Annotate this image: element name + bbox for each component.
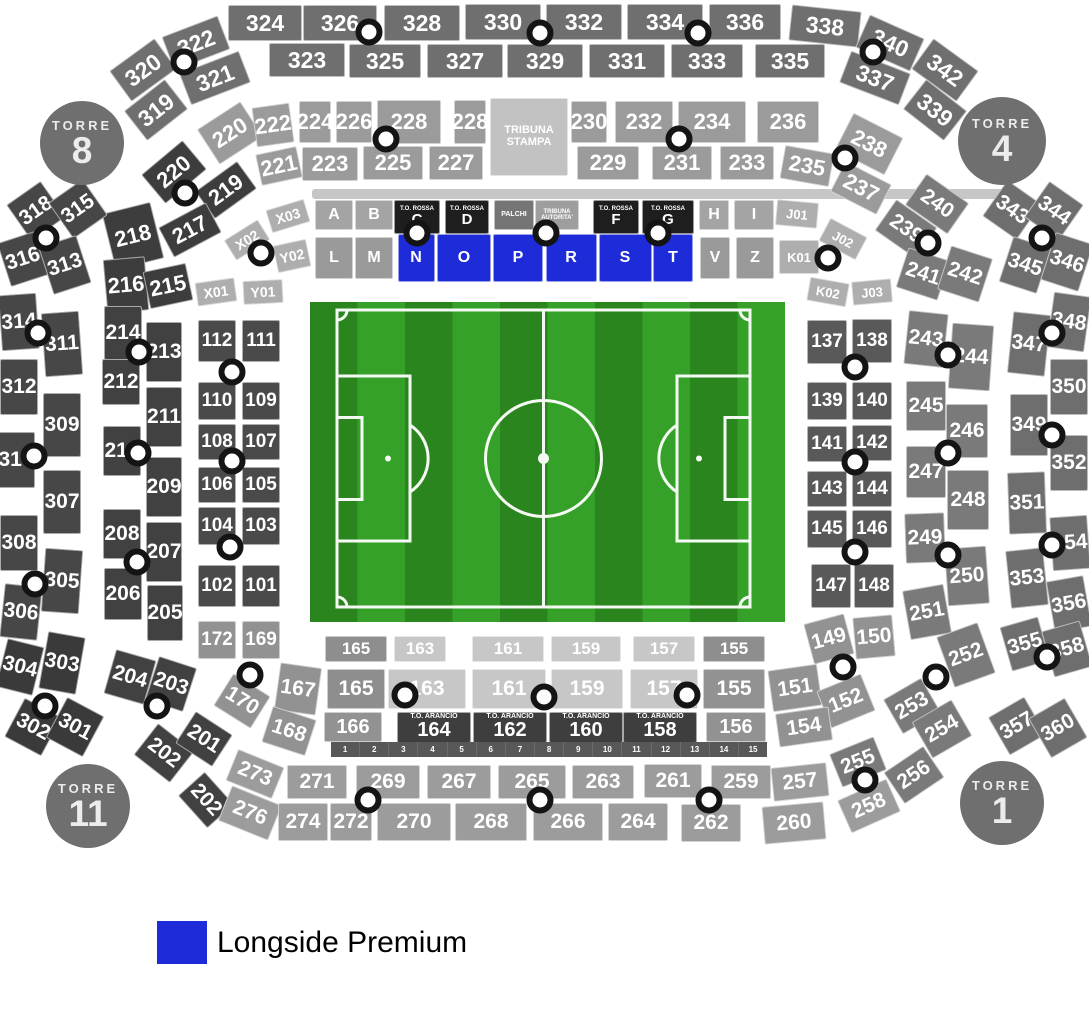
section-h[interactable]: H — [699, 200, 729, 230]
gate-marker-icon — [832, 145, 859, 172]
section-226[interactable]: 226 — [336, 101, 372, 143]
section-324[interactable]: 324 — [228, 5, 302, 41]
gate-cell-1: 1 — [331, 742, 359, 757]
section-label: D — [462, 212, 473, 228]
tower-number: 1 — [992, 793, 1013, 828]
section-155[interactable]: 155 — [703, 636, 765, 662]
section-332[interactable]: 332 — [546, 4, 622, 40]
gate-cell-11: 11 — [622, 742, 650, 757]
tower-number: 4 — [992, 131, 1013, 166]
section-205[interactable]: 205 — [147, 585, 183, 641]
gate-cell-7: 7 — [506, 742, 534, 757]
gate-marker-icon — [356, 19, 383, 46]
section-k01[interactable]: K01 — [779, 240, 819, 274]
section-159[interactable]: 159 — [551, 636, 621, 662]
gate-marker-icon — [674, 682, 701, 709]
section-223[interactable]: 223 — [302, 147, 358, 181]
gate-marker-icon — [33, 225, 60, 252]
gate-marker-icon — [126, 339, 153, 366]
gate-marker-icon — [1039, 422, 1066, 449]
section-103[interactable]: 103 — [242, 507, 280, 545]
section-147[interactable]: 147 — [811, 564, 851, 608]
section-label: 158 — [643, 720, 676, 741]
section-163[interactable]: 163 — [394, 636, 446, 662]
gate-marker-icon — [666, 126, 693, 153]
section-stampa[interactable]: TRIBUNASTAMPA — [490, 98, 568, 176]
section-156[interactable]: 156 — [706, 712, 766, 742]
gate-marker-icon — [842, 449, 869, 476]
section-331[interactable]: 331 — [589, 44, 665, 78]
section-155[interactable]: 155 — [703, 669, 765, 709]
gate-marker-icon — [219, 448, 246, 475]
section-228[interactable]: 228 — [454, 100, 486, 144]
section-158[interactable]: T.O. ARANCIO158 — [623, 712, 697, 743]
gate-cell-8: 8 — [535, 742, 563, 757]
section-165[interactable]: 165 — [327, 669, 385, 709]
section-215[interactable]: 215 — [143, 263, 194, 309]
section-l[interactable]: L — [315, 237, 353, 279]
tower-number: 11 — [68, 796, 107, 831]
gate-marker-icon — [25, 320, 52, 347]
gate-marker-icon — [830, 654, 857, 681]
gate-marker-icon — [144, 693, 171, 720]
gate-marker-icon — [685, 20, 712, 47]
gate-marker-icon — [852, 767, 879, 794]
section-333[interactable]: 333 — [671, 44, 743, 78]
section-109[interactable]: 109 — [242, 382, 280, 420]
football-pitch — [310, 302, 785, 622]
section-207[interactable]: 207 — [146, 522, 182, 582]
section-248[interactable]: 248 — [947, 470, 989, 530]
section-label: F — [611, 212, 620, 228]
gate-marker-icon — [915, 230, 942, 257]
section-260[interactable]: 260 — [761, 801, 826, 844]
gate-marker-icon — [32, 693, 59, 720]
section-233[interactable]: 233 — [720, 146, 774, 180]
section-323[interactable]: 323 — [269, 43, 345, 77]
section-107[interactable]: 107 — [242, 424, 280, 460]
section-338[interactable]: 338 — [788, 4, 861, 47]
section-137[interactable]: 137 — [807, 320, 847, 364]
section-154[interactable]: 154 — [775, 706, 833, 747]
gate-marker-icon — [935, 542, 962, 569]
section-312[interactable]: 312 — [0, 359, 38, 415]
section-101[interactable]: 101 — [242, 565, 280, 607]
section-144[interactable]: 144 — [852, 471, 892, 507]
gate-marker-icon — [404, 220, 431, 247]
gate-marker-icon — [355, 787, 382, 814]
section-325[interactable]: 325 — [349, 44, 421, 78]
section-274[interactable]: 274 — [278, 803, 328, 841]
section-label: 160 — [569, 720, 602, 741]
gate-marker-icon — [21, 443, 48, 470]
section-label: 162 — [493, 720, 526, 741]
section-261[interactable]: 261 — [644, 764, 702, 798]
section-y01[interactable]: Y01 — [242, 279, 283, 305]
section-267[interactable]: 267 — [427, 765, 491, 799]
gate-marker-icon — [172, 180, 199, 207]
section-209[interactable]: 209 — [146, 457, 182, 517]
gate-marker-icon — [842, 354, 869, 381]
section-164[interactable]: T.O. ARANCIO164 — [397, 712, 471, 743]
gate-marker-icon — [1039, 320, 1066, 347]
section-159[interactable]: 159 — [551, 669, 623, 709]
section-235[interactable]: 235 — [779, 145, 834, 187]
section-263[interactable]: 263 — [572, 765, 634, 799]
gate-marker-icon — [1039, 532, 1066, 559]
section-211[interactable]: 211 — [146, 387, 182, 447]
legend: Longside Premium — [157, 921, 467, 964]
section-j03[interactable]: J03 — [851, 278, 893, 305]
gate-marker-icon — [527, 20, 554, 47]
section-212[interactable]: 212 — [102, 359, 140, 405]
section-palchi[interactable]: PALCHI — [494, 200, 534, 230]
section-172[interactable]: 172 — [198, 621, 236, 659]
section-251[interactable]: 251 — [902, 584, 952, 641]
section-206[interactable]: 206 — [104, 568, 142, 620]
section-f[interactable]: T.O. ROSSAF — [593, 200, 639, 234]
tower-number: 8 — [72, 133, 93, 168]
gate-marker-icon — [815, 245, 842, 272]
section-x01[interactable]: X01 — [195, 277, 238, 306]
section-112[interactable]: 112 — [198, 320, 236, 362]
gate-cell-10: 10 — [593, 742, 621, 757]
section-k02[interactable]: K02 — [806, 277, 850, 308]
concourse-strip — [312, 189, 1012, 199]
gate-marker-icon — [935, 440, 962, 467]
section-311[interactable]: 311 — [41, 311, 83, 377]
section-227[interactable]: 227 — [429, 146, 483, 180]
section-102[interactable]: 102 — [198, 565, 236, 607]
section-165[interactable]: 165 — [325, 636, 387, 662]
section-336[interactable]: 336 — [709, 4, 781, 40]
section-166[interactable]: 166 — [324, 712, 382, 742]
section-141[interactable]: 141 — [807, 426, 847, 462]
gate-cell-9: 9 — [564, 742, 592, 757]
gate-cell-5: 5 — [448, 742, 476, 757]
gate-marker-icon — [237, 662, 264, 689]
section-sublabel: PALCHI — [501, 211, 527, 218]
legend-color-swatch — [157, 921, 207, 964]
gate-cell-15: 15 — [739, 742, 767, 757]
section-148[interactable]: 148 — [854, 564, 894, 608]
section-140[interactable]: 140 — [852, 382, 892, 420]
section-v[interactable]: V — [700, 237, 730, 279]
section-157[interactable]: 157 — [633, 636, 695, 662]
section-221[interactable]: 221 — [255, 146, 303, 186]
gate-marker-icon — [217, 534, 244, 561]
section-245[interactable]: 245 — [906, 381, 946, 431]
gate-marker-icon — [22, 571, 49, 598]
section-label: STAMPA — [507, 137, 552, 149]
section-335[interactable]: 335 — [755, 44, 825, 78]
section-350[interactable]: 350 — [1050, 359, 1088, 415]
section-225[interactable]: 225 — [363, 146, 423, 180]
section-268[interactable]: 268 — [455, 803, 527, 841]
section-307[interactable]: 307 — [43, 470, 81, 534]
section-161[interactable]: 161 — [472, 636, 544, 662]
gate-cell-4: 4 — [418, 742, 446, 757]
section-353[interactable]: 353 — [1005, 547, 1049, 609]
section-242[interactable]: 242 — [937, 245, 993, 302]
section-271[interactable]: 271 — [287, 765, 347, 799]
gate-marker-icon — [935, 342, 962, 369]
section-150[interactable]: 150 — [852, 614, 896, 659]
section-151[interactable]: 151 — [767, 664, 822, 713]
gate-marker-icon — [860, 39, 887, 66]
gate-marker-icon — [645, 220, 672, 247]
legend-label: Longside Premium — [217, 926, 467, 960]
section-160[interactable]: T.O. ARANCIO160 — [549, 712, 623, 743]
gate-marker-icon — [373, 126, 400, 153]
section-329[interactable]: 329 — [507, 44, 583, 78]
gate-cell-3: 3 — [389, 742, 417, 757]
section-264[interactable]: 264 — [608, 803, 668, 841]
tower-1: TORRE1 — [960, 761, 1044, 845]
gate-cell-12: 12 — [652, 742, 680, 757]
tower-4: TORRE4 — [958, 97, 1046, 185]
gate-cell-2: 2 — [360, 742, 388, 757]
gate-marker-icon — [171, 49, 198, 76]
gate-marker-icon — [125, 440, 152, 467]
gate-marker-icon — [392, 682, 419, 709]
section-z[interactable]: Z — [736, 237, 774, 279]
section-y02[interactable]: Y02 — [272, 239, 311, 273]
section-257[interactable]: 257 — [770, 762, 829, 802]
stadium-seat-map: 3223243263283303323343363383403203423213… — [0, 0, 1089, 1032]
tower-8: TORRE8 — [40, 101, 124, 185]
gate-marker-icon — [842, 539, 869, 566]
gate-marker-icon — [696, 787, 723, 814]
section-232[interactable]: 232 — [615, 101, 673, 143]
gate-marker-icon — [533, 220, 560, 247]
section-d[interactable]: T.O. ROSSAD — [445, 200, 489, 234]
gate-marker-icon — [124, 549, 151, 576]
section-351[interactable]: 351 — [1007, 471, 1047, 534]
gate-marker-icon — [219, 359, 246, 386]
section-303[interactable]: 303 — [38, 631, 85, 695]
gate-marker-icon — [923, 664, 950, 691]
section-327[interactable]: 327 — [427, 44, 503, 78]
section-j01[interactable]: J01 — [775, 199, 819, 229]
gate-marker-icon — [248, 240, 275, 267]
gate-marker-icon — [527, 787, 554, 814]
section-169[interactable]: 169 — [242, 621, 280, 659]
section-162[interactable]: T.O. ARANCIO162 — [473, 712, 547, 743]
section-328[interactable]: 328 — [384, 5, 460, 41]
section-145[interactable]: 145 — [807, 510, 847, 548]
section-b[interactable]: B — [355, 200, 393, 230]
section-label: 164 — [417, 720, 450, 741]
section-110[interactable]: 110 — [198, 382, 236, 420]
section-224[interactable]: 224 — [299, 101, 331, 143]
section-229[interactable]: 229 — [577, 146, 639, 180]
section-105[interactable]: 105 — [242, 467, 280, 503]
section-x03[interactable]: X03 — [265, 199, 310, 234]
gate-marker-icon — [531, 684, 558, 711]
section-139[interactable]: 139 — [807, 382, 847, 420]
section-360[interactable]: 360 — [1028, 698, 1087, 759]
tower-11: TORRE11 — [46, 764, 130, 848]
gate-cell-14: 14 — [710, 742, 738, 757]
section-o[interactable]: O — [437, 234, 491, 282]
section-230[interactable]: 230 — [571, 101, 607, 143]
section-222[interactable]: 222 — [251, 103, 294, 148]
gate-number-strip: 123456789101112131415 — [331, 742, 767, 757]
section-236[interactable]: 236 — [757, 101, 819, 143]
section-a[interactable]: A — [315, 200, 353, 230]
section-s[interactable]: S — [599, 234, 652, 282]
section-111[interactable]: 111 — [242, 320, 280, 362]
section-143[interactable]: 143 — [807, 471, 847, 507]
section-i[interactable]: I — [734, 200, 774, 230]
gate-cell-13: 13 — [681, 742, 709, 757]
gate-marker-icon — [1034, 644, 1061, 671]
gate-cell-6: 6 — [477, 742, 505, 757]
gate-marker-icon — [1029, 225, 1056, 252]
section-270[interactable]: 270 — [377, 803, 451, 841]
section-309[interactable]: 309 — [43, 393, 81, 457]
section-308[interactable]: 308 — [0, 515, 38, 571]
section-m[interactable]: M — [355, 237, 393, 279]
